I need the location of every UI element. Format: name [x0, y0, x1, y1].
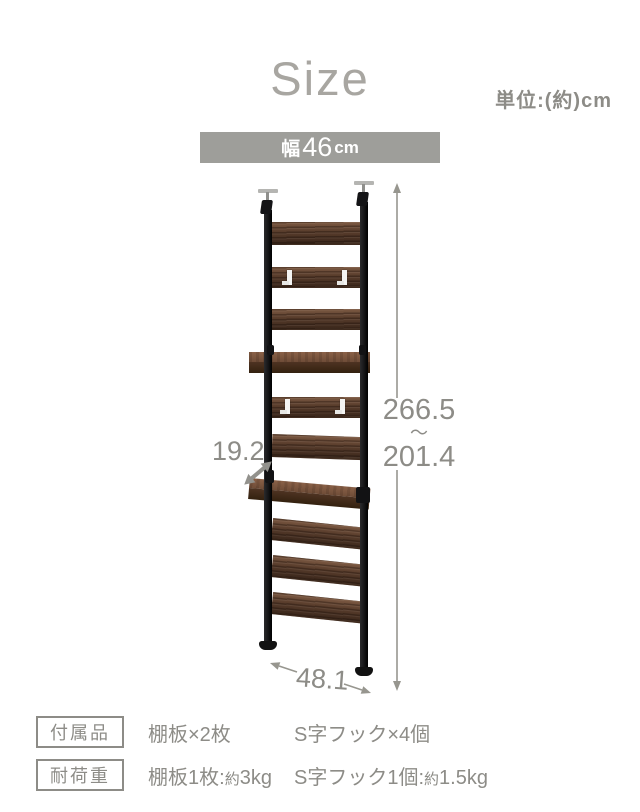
- width-banner-unit: cm: [334, 138, 359, 158]
- pole-right: [360, 202, 368, 674]
- height-max-value: 266.5: [376, 395, 462, 425]
- slat-board-7: [271, 555, 367, 587]
- unit-note: 単位:(約)cm: [495, 84, 612, 113]
- s-hook-4-icon: [340, 399, 345, 414]
- spec-label-load-capacity: 耐荷重: [36, 759, 124, 791]
- slat-board-3: [272, 309, 366, 330]
- slat-board-1: [272, 222, 366, 245]
- tension-clamp-right-icon: [356, 192, 369, 206]
- spec-load-hook-prefix: S字フック1個:: [294, 767, 424, 789]
- spec-load-hook: S字フック1個:約1.5kg: [294, 761, 488, 790]
- width-banner: 幅 46 cm: [200, 132, 440, 163]
- height-dimension-label: 266.5 〜 201.4: [376, 395, 462, 472]
- pole-foot-right: [355, 667, 373, 676]
- spec-load-shelf-prefix: 棚板1枚:: [148, 767, 225, 789]
- spec-load-hook-value: 1.5kg: [439, 767, 488, 789]
- slat-board-6: [271, 518, 367, 550]
- spec-row-load-capacity: 耐荷重 棚板1枚:約3kg S字フック1個:約1.5kg: [36, 759, 606, 791]
- tension-clamp-left-icon: [260, 200, 273, 214]
- shelf1-bracket-left: [267, 345, 274, 355]
- spec-load-shelf-value: 3kg: [240, 767, 272, 789]
- shelf1-bracket-right: [359, 345, 366, 355]
- spec-load-hook-approx: 約: [424, 771, 439, 788]
- width-banner-prefix: 幅: [281, 134, 300, 161]
- shelf2-bracket-right: [356, 487, 370, 503]
- s-hook-1-icon: [287, 270, 292, 285]
- spec-accessories-s-hooks: S字フック×4個: [294, 718, 430, 747]
- specs-table: 付属品 棚板×2枚 S字フック×4個 耐荷重 棚板1枚:約3kg S字フック1個…: [36, 716, 606, 802]
- depth-dimension-label: 19.2: [212, 436, 265, 467]
- slat-board-8: [271, 592, 367, 624]
- s-hook-3-icon: [285, 399, 290, 414]
- width-dimension-label: 48.1: [295, 662, 350, 697]
- slat-board-5: [272, 434, 367, 460]
- size-diagram-page: Size 単位:(約)cm 幅 46 cm: [0, 0, 640, 812]
- pole-left: [264, 210, 272, 648]
- spec-load-shelf-approx: 約: [225, 771, 240, 788]
- shelf2-bracket-left: [265, 470, 274, 483]
- pole-foot-left: [259, 641, 277, 650]
- height-min-value: 201.4: [376, 442, 462, 472]
- spec-label-accessories: 付属品: [36, 716, 124, 748]
- height-range-tilde: 〜: [376, 425, 462, 442]
- width-banner-value: 46: [302, 134, 332, 161]
- spec-row-accessories: 付属品 棚板×2枚 S字フック×4個: [36, 716, 606, 748]
- s-hook-2-icon: [342, 270, 347, 285]
- spec-accessories-shelf-boards: 棚板×2枚: [148, 718, 294, 747]
- spec-load-shelf: 棚板1枚:約3kg: [148, 761, 294, 790]
